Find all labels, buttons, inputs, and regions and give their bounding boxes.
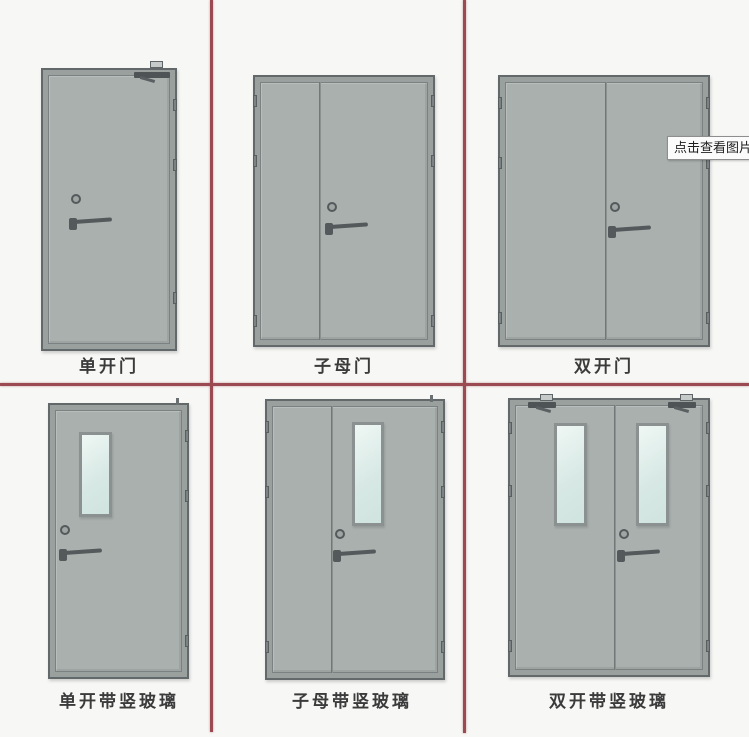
hinge-icon xyxy=(441,486,445,498)
hinge-icon xyxy=(706,640,710,652)
click-to-view-tooltip: 点击查看图片 xyxy=(667,136,749,160)
door-double xyxy=(498,75,710,347)
hinge-icon xyxy=(441,421,445,433)
door-single xyxy=(41,68,177,351)
door-closer-icon xyxy=(680,394,693,401)
hinge-icon xyxy=(498,312,502,324)
hinge-icon xyxy=(508,640,512,652)
lock-cylinder-icon xyxy=(327,202,337,212)
door-label: 子母带竖玻璃 xyxy=(267,691,437,713)
door-handle-icon xyxy=(333,550,341,562)
grid-divider-vertical-2 xyxy=(463,0,466,733)
door-closer-icon xyxy=(540,394,553,401)
door-handle-icon xyxy=(325,223,333,235)
grid-divider-horizontal xyxy=(0,383,749,386)
door-label: 子母门 xyxy=(259,356,429,378)
door-leaf-divider xyxy=(605,82,607,340)
hinge-icon xyxy=(185,490,189,502)
hinge-icon xyxy=(706,97,710,109)
door-label: 单开门 xyxy=(24,356,194,378)
lock-cylinder-icon xyxy=(619,529,629,539)
hinge-icon xyxy=(265,486,269,498)
fire-door-types-image[interactable]: 单开门 子母门 双开门 单开带竖玻璃 xyxy=(0,0,749,737)
door-leaf-divider xyxy=(319,82,321,340)
hinge-icon xyxy=(431,315,435,327)
grid-divider-vertical-1 xyxy=(210,0,213,732)
hinge-icon xyxy=(706,485,710,497)
door-single-glass xyxy=(48,403,189,679)
door-closer-icon xyxy=(430,395,433,402)
hinge-icon xyxy=(508,485,512,497)
door-closer-icon xyxy=(150,61,163,68)
door-label: 单开带竖玻璃 xyxy=(34,691,204,713)
hinge-icon xyxy=(431,155,435,167)
glass-panel xyxy=(79,432,112,517)
hinge-icon xyxy=(173,99,177,111)
hinge-icon xyxy=(706,422,710,434)
lock-cylinder-icon xyxy=(71,194,81,204)
door-leaf-divider xyxy=(331,406,333,673)
door-leaf-divider xyxy=(614,405,616,670)
hinge-icon xyxy=(185,430,189,442)
door-leaf xyxy=(515,405,703,670)
lock-cylinder-icon xyxy=(60,525,70,535)
door-handle-icon xyxy=(617,550,625,562)
glass-panel xyxy=(636,423,669,526)
door-mother-child-glass xyxy=(265,399,445,680)
door-leaf xyxy=(260,82,428,340)
lock-cylinder-icon xyxy=(610,202,620,212)
door-label: 双开门 xyxy=(519,356,689,378)
door-handle-icon xyxy=(608,226,616,238)
hinge-icon xyxy=(441,641,445,653)
lock-cylinder-icon xyxy=(335,529,345,539)
hinge-icon xyxy=(498,97,502,109)
hinge-icon xyxy=(431,95,435,107)
glass-panel xyxy=(554,423,587,526)
hinge-icon xyxy=(173,292,177,304)
door-closer-icon xyxy=(176,398,179,405)
hinge-icon xyxy=(498,157,502,169)
door-double-glass xyxy=(508,398,710,677)
hinge-icon xyxy=(508,422,512,434)
door-mother-child xyxy=(253,75,435,347)
hinge-icon xyxy=(173,159,177,171)
door-label: 双开带竖玻璃 xyxy=(524,691,694,713)
hinge-icon xyxy=(253,95,257,107)
glass-panel xyxy=(352,422,384,526)
tooltip-text: 点击查看图片 xyxy=(674,140,749,155)
door-handle-icon xyxy=(69,218,77,230)
hinge-icon xyxy=(265,421,269,433)
hinge-icon xyxy=(265,641,269,653)
door-handle-icon xyxy=(59,549,67,561)
door-leaf xyxy=(48,75,170,344)
hinge-icon xyxy=(253,155,257,167)
door-leaf xyxy=(55,410,182,672)
hinge-icon xyxy=(706,312,710,324)
hinge-icon xyxy=(253,315,257,327)
door-leaf xyxy=(505,82,703,340)
hinge-icon xyxy=(185,635,189,647)
